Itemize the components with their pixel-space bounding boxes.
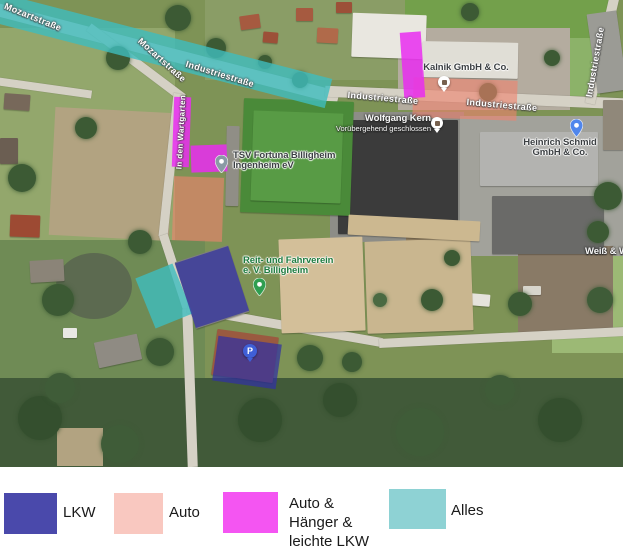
tree bbox=[421, 289, 443, 311]
parking-pin-icon[interactable]: P bbox=[243, 344, 257, 358]
tree bbox=[396, 408, 444, 456]
overlay-auto_haenger bbox=[399, 31, 425, 98]
poi-label-line: Weiß & We bbox=[585, 247, 623, 257]
legend-label-0: LKW bbox=[63, 503, 96, 522]
legend-label-2: Auto &Hänger &leichte LKW bbox=[289, 494, 369, 551]
legend-label-line: Hänger & bbox=[289, 513, 369, 532]
poi-pin-tsv-fortuna[interactable] bbox=[215, 155, 228, 173]
map-terrain bbox=[57, 428, 103, 466]
building bbox=[603, 100, 623, 150]
poi-label-line: e. V. Billigheim bbox=[243, 266, 333, 276]
building bbox=[0, 138, 18, 164]
tree bbox=[373, 293, 387, 307]
poi-pin-wolfgang-kern[interactable] bbox=[431, 117, 443, 129]
poi-label-line: Wolfgang Kern bbox=[336, 114, 431, 124]
tree bbox=[485, 375, 515, 405]
poi-status-text: Vorübergehend geschlossen bbox=[336, 124, 431, 134]
tree bbox=[146, 338, 174, 366]
poi-label-tsv-fortuna[interactable]: TSV Fortuna BilligheimIngenheim eV bbox=[233, 151, 335, 171]
building bbox=[278, 237, 365, 334]
poi-pin-tip bbox=[441, 88, 447, 92]
poi-pin-tip bbox=[247, 358, 253, 362]
overlay-lkw bbox=[212, 335, 282, 388]
shopping-pin-icon bbox=[435, 121, 440, 126]
tree bbox=[342, 352, 362, 372]
overlay-auto bbox=[172, 176, 224, 242]
building bbox=[63, 328, 77, 338]
map-pin-icon bbox=[215, 155, 228, 173]
building bbox=[317, 27, 339, 43]
tree bbox=[238, 398, 282, 442]
shopping-pin-icon bbox=[442, 80, 447, 85]
tree bbox=[444, 250, 460, 266]
poi-pin-heinrich-schmid[interactable] bbox=[570, 119, 583, 137]
legend-swatch-2 bbox=[223, 492, 278, 533]
poi-label-weiss[interactable]: Weiß & We bbox=[585, 247, 623, 257]
legend: LKWAutoAuto &Hänger &leichte LKWAlles bbox=[0, 467, 623, 556]
poi-pin-tip bbox=[434, 129, 440, 133]
tree bbox=[508, 292, 532, 316]
tree bbox=[461, 3, 479, 21]
legend-label-line: Auto bbox=[169, 503, 200, 522]
building bbox=[296, 8, 313, 21]
building bbox=[422, 41, 519, 79]
tree bbox=[323, 383, 357, 417]
legend-label-line: leichte LKW bbox=[289, 532, 369, 551]
tree bbox=[544, 50, 560, 66]
tree bbox=[45, 373, 75, 403]
tree bbox=[587, 221, 609, 243]
tree bbox=[594, 182, 622, 210]
poi-label-line: GmbH & Co. bbox=[523, 148, 596, 158]
map-terrain bbox=[49, 107, 176, 241]
map-canvas[interactable]: MozartstraßeMozartstraßeIndustriestraßeI… bbox=[0, 0, 623, 467]
poi-label-heinrich-schmid[interactable]: Heinrich SchmidGmbH & Co. bbox=[523, 138, 596, 158]
legend-label-line: LKW bbox=[63, 503, 96, 522]
tree bbox=[8, 164, 36, 192]
legend-swatch-1 bbox=[114, 493, 163, 534]
poi-label-wolfgang-kern[interactable]: Wolfgang KernVorübergehend geschlossen bbox=[336, 114, 431, 134]
tree bbox=[128, 230, 152, 254]
legend-label-line: Auto & bbox=[289, 494, 369, 513]
poi-label-reit-fahrverein[interactable]: Reit- und Fahrvereine. V. Billigheim bbox=[243, 256, 333, 276]
legend-swatch-3 bbox=[389, 489, 446, 529]
poi-pin-kalnik[interactable] bbox=[438, 76, 450, 88]
legend-label-1: Auto bbox=[169, 503, 200, 522]
tree bbox=[42, 284, 74, 316]
building bbox=[3, 93, 30, 111]
poi-label-kalnik[interactable]: Kalnik GmbH & Co. bbox=[423, 63, 508, 73]
map-pin-icon bbox=[570, 119, 583, 137]
tree bbox=[538, 398, 582, 442]
building bbox=[10, 214, 41, 237]
building bbox=[29, 259, 64, 283]
tree bbox=[75, 117, 97, 139]
building bbox=[263, 31, 279, 43]
building bbox=[239, 14, 261, 31]
tree bbox=[165, 5, 191, 31]
poi-pin-reit-fahrverein[interactable] bbox=[253, 278, 266, 296]
building bbox=[336, 2, 352, 13]
tree bbox=[101, 425, 139, 463]
legend-swatch-0 bbox=[4, 493, 57, 534]
poi-label-line: Kalnik GmbH & Co. bbox=[423, 63, 508, 73]
tree bbox=[18, 396, 62, 440]
map-pin-icon bbox=[253, 278, 266, 296]
poi-label-line: Ingenheim eV bbox=[233, 161, 335, 171]
tree bbox=[587, 287, 613, 313]
parking-zones-map-screenshot: MozartstraßeMozartstraßeIndustriestraßeI… bbox=[0, 0, 623, 556]
legend-label-3: Alles bbox=[451, 501, 484, 520]
tree bbox=[297, 345, 323, 371]
legend-label-line: Alles bbox=[451, 501, 484, 520]
